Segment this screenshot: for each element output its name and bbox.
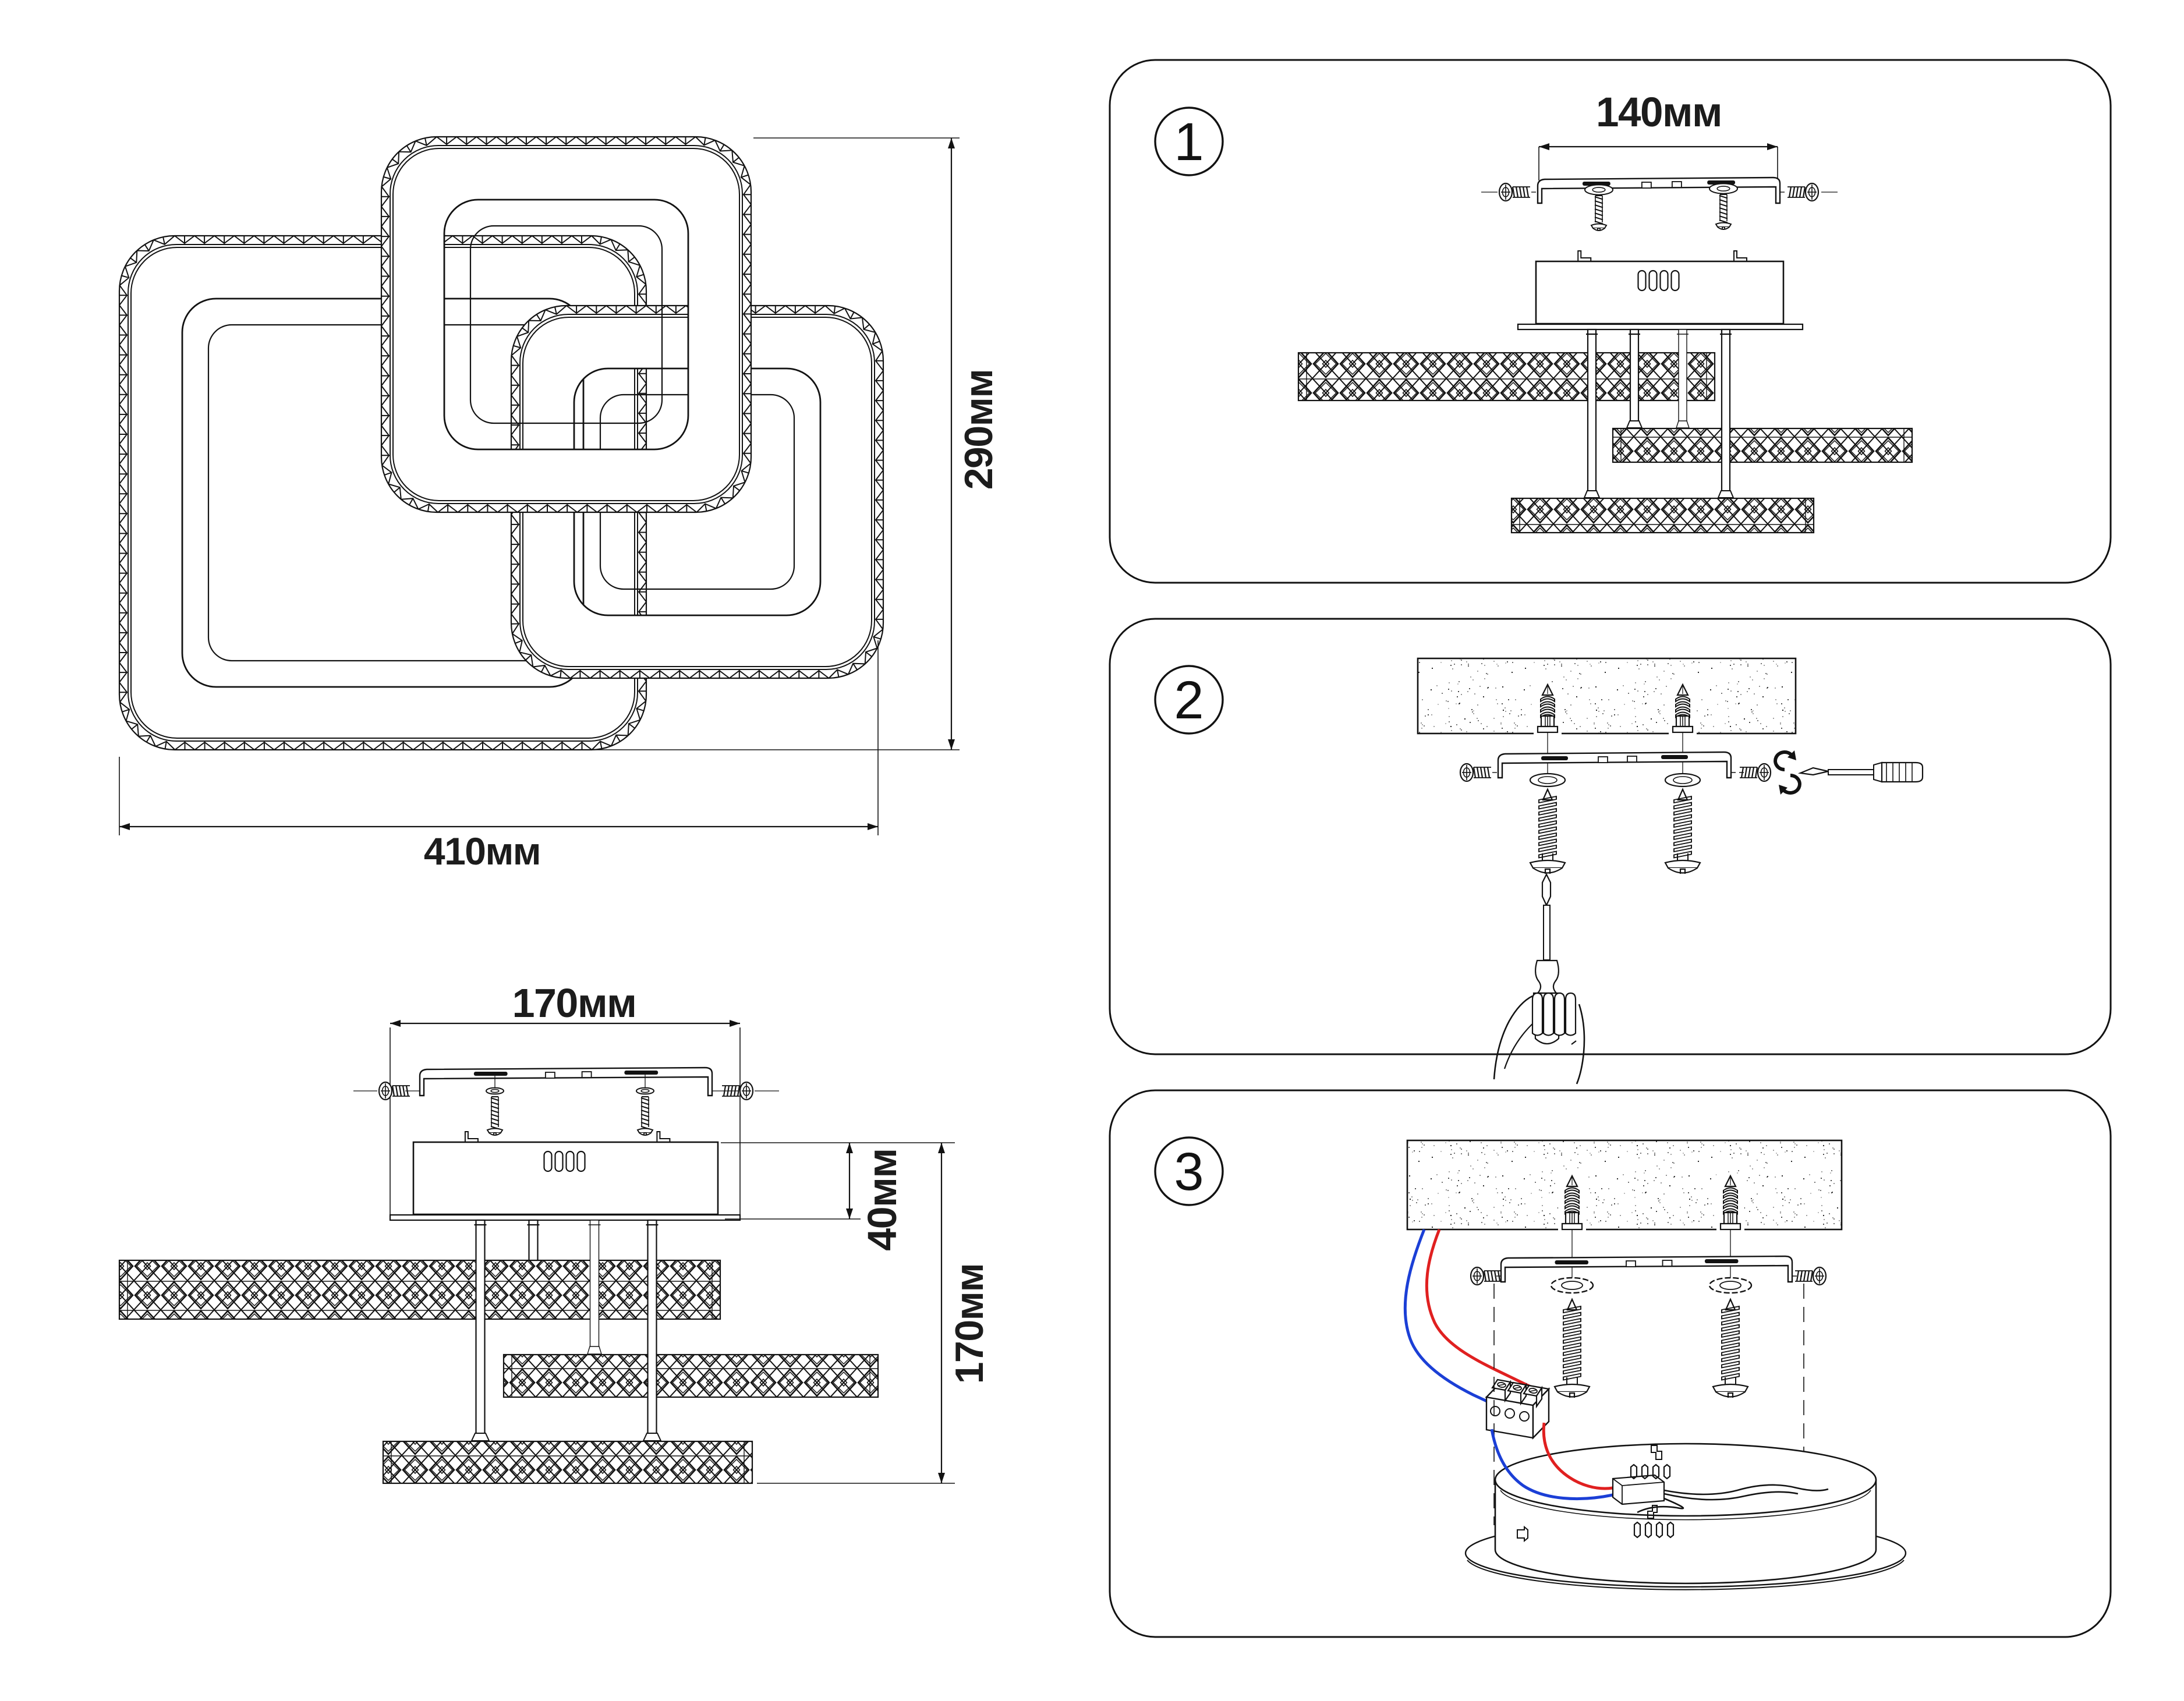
svg-text:3: 3 [1174,1142,1203,1202]
svg-text:170мм: 170мм [512,980,636,1026]
svg-text:290мм: 290мм [957,370,1001,490]
svg-text:140мм: 140мм [1596,90,1722,136]
svg-text:2: 2 [1174,671,1203,730]
svg-text:40мм: 40мм [859,1149,905,1250]
svg-text:1: 1 [1174,112,1203,172]
svg-text:410мм: 410мм [424,830,540,873]
svg-text:170мм: 170мм [947,1264,992,1384]
